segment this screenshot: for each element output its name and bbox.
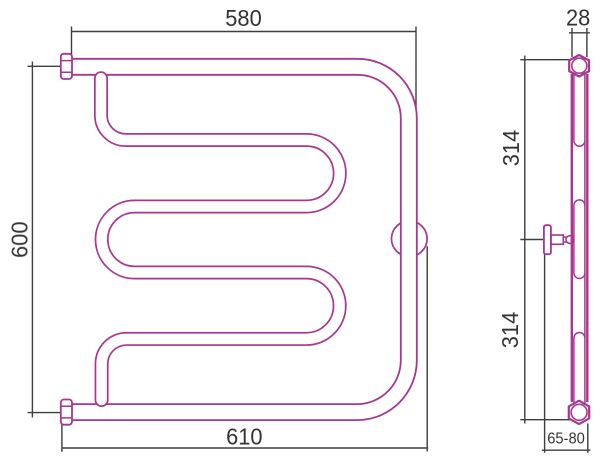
svg-text:610: 610 [226, 423, 262, 450]
svg-text:600: 600 [6, 221, 33, 257]
svg-text:28: 28 [566, 4, 590, 31]
svg-text:314: 314 [497, 130, 524, 166]
svg-text:314: 314 [496, 312, 523, 348]
svg-text:580: 580 [225, 4, 261, 31]
svg-text:65-80: 65-80 [547, 430, 585, 448]
